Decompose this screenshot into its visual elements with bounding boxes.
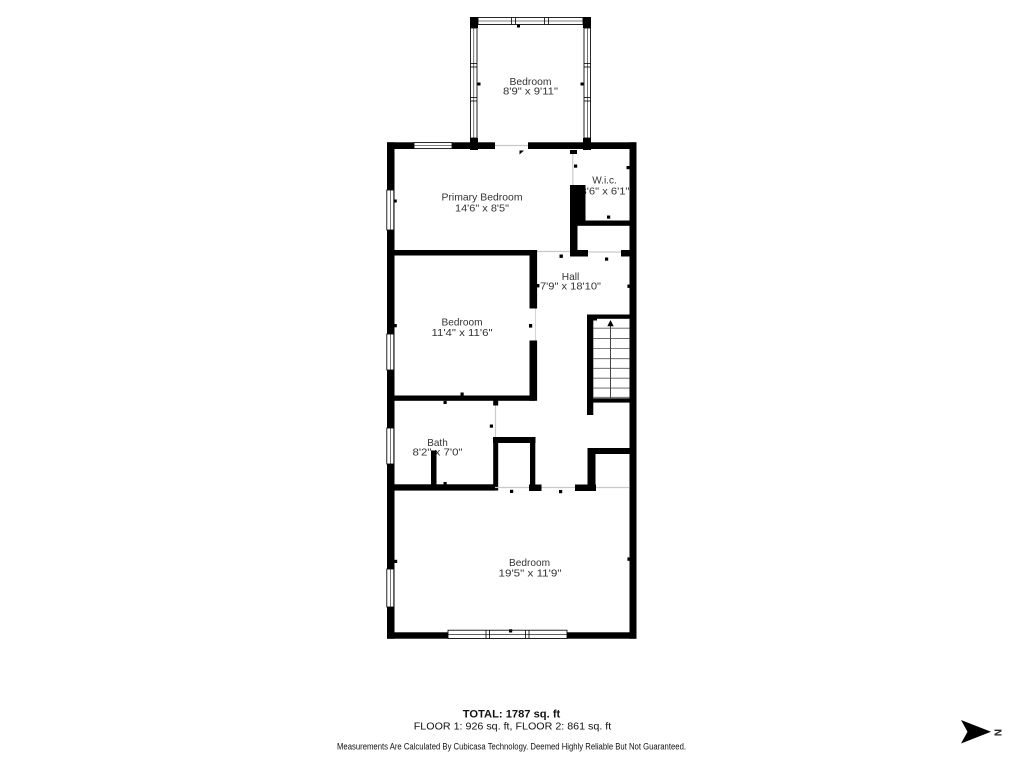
svg-text:TOTAL: 1787 sq. ft: TOTAL: 1787 sq. ft — [463, 709, 561, 721]
svg-text:N: N — [992, 729, 1003, 736]
svg-text:7'9" x 18'10": 7'9" x 18'10" — [540, 281, 601, 293]
svg-text:8'2" x 7'0": 8'2" x 7'0" — [413, 446, 463, 458]
svg-text:FLOOR 1: 926 sq. ft, FLOOR 2:: FLOOR 1: 926 sq. ft, FLOOR 2: 861 sq. ft — [414, 721, 612, 733]
svg-text:14'6" x 8'5": 14'6" x 8'5" — [455, 203, 509, 215]
svg-text:8'9" x 9'11": 8'9" x 9'11" — [503, 86, 558, 98]
svg-text:11'4" x 11'6": 11'4" x 11'6" — [432, 327, 493, 339]
svg-text:Measurements Are Calculated By: Measurements Are Calculated By Cubicasa … — [337, 742, 686, 752]
svg-text:3'6" x 6'1": 3'6" x 6'1" — [581, 186, 630, 198]
svg-text:19'5" x 11'9": 19'5" x 11'9" — [499, 567, 562, 579]
